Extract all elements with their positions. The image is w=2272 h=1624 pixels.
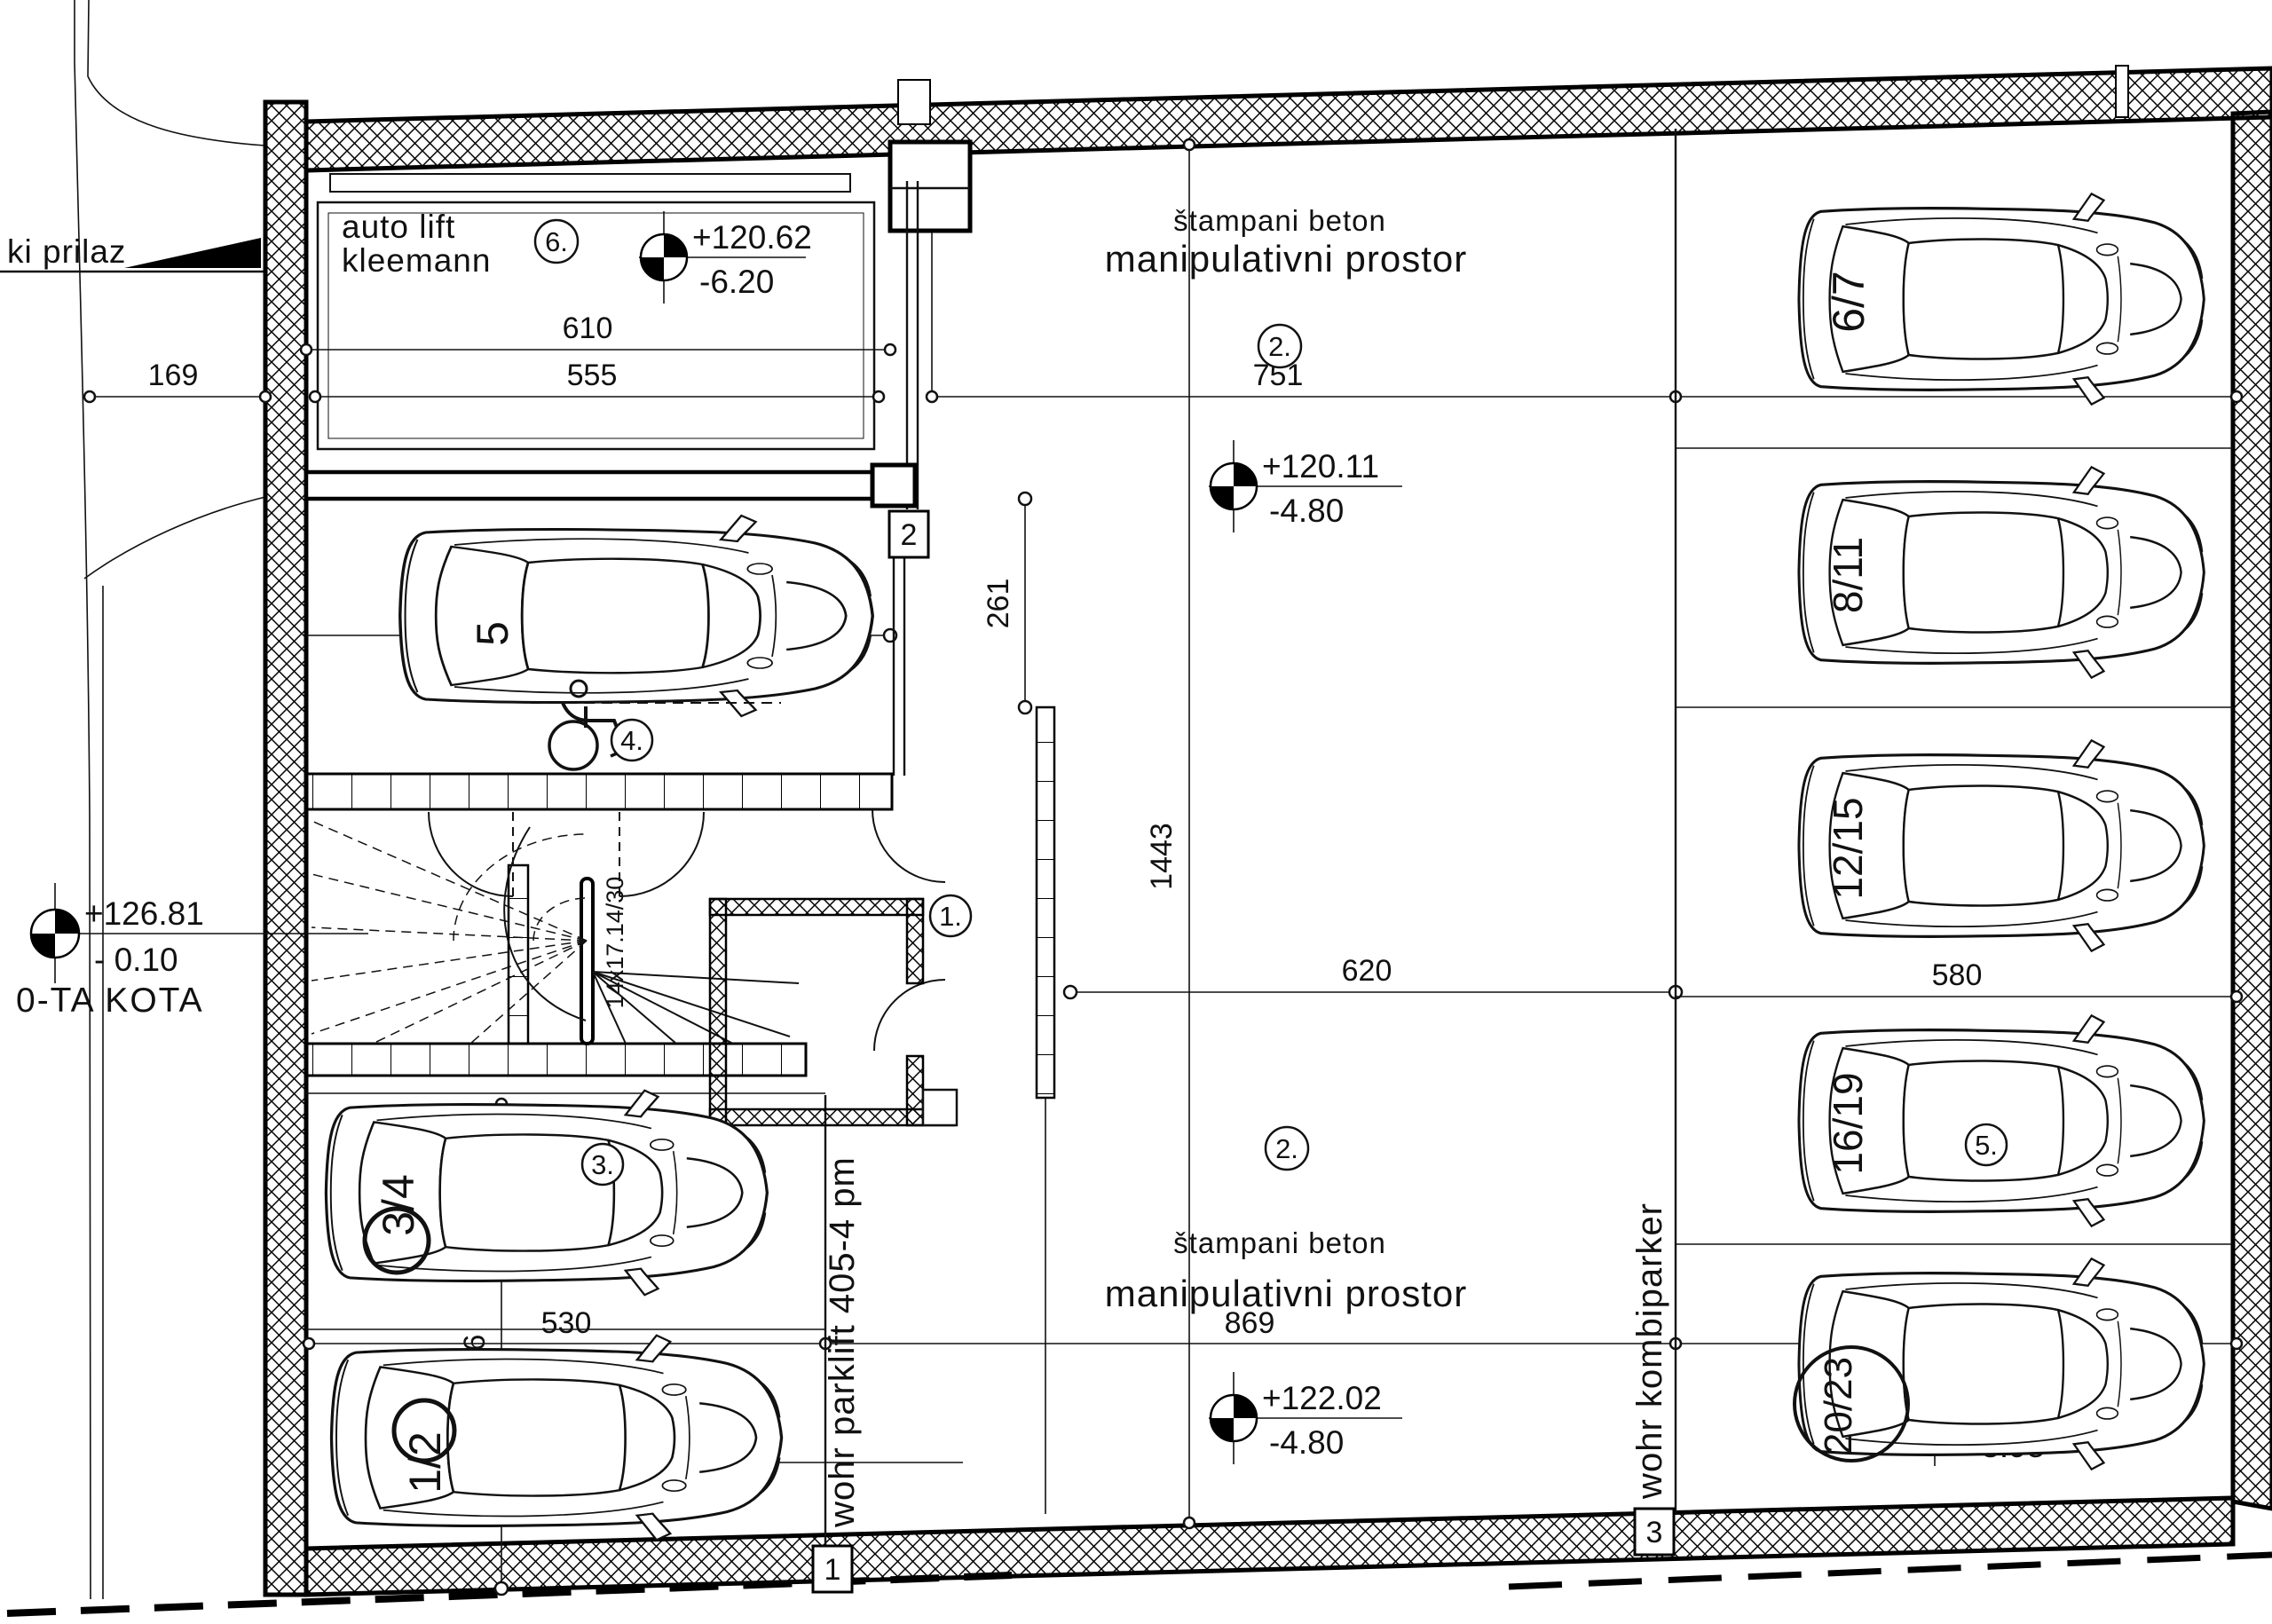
elevation-marker-top-icon: +120.11 -4.80 — [1209, 440, 1402, 532]
entrance: ki prilaz — [0, 233, 265, 272]
floor-plan-page: ki prilaz auto lift kleemann 6. — [0, 0, 2272, 1624]
stair-wall-bottom — [306, 1044, 806, 1076]
area-bottom-name: manipulativni prostor — [1105, 1273, 1468, 1314]
area-top-material: štampani beton — [1173, 204, 1386, 237]
shaft-wall-right-upper — [907, 899, 923, 983]
benchmark-abs: +126.81 — [84, 895, 204, 932]
wall-end-column — [872, 465, 915, 506]
dim-530: 530 — [541, 1306, 592, 1340]
elevation-marker-mid-icon: +122.02 -4.80 — [1209, 1372, 1402, 1464]
elev-lift-abs: +120.62 — [692, 219, 812, 256]
shaft-block — [923, 1090, 957, 1125]
stall-1215-label: 12/15 — [1825, 797, 1871, 899]
grid-3: 3 — [1646, 1516, 1663, 1549]
equipment-labels: wohr parklift 405-4 pm wohr kombiparker — [823, 1156, 1669, 1528]
stall-67-label: 6/7 — [1824, 271, 1874, 333]
shaft-wall-top — [710, 899, 923, 915]
wall-joint — [2116, 66, 2128, 117]
elev-lift-rel: -6.20 — [699, 264, 774, 300]
benchmark-rel: - 0.10 — [94, 942, 178, 978]
bubble-5: 5. — [1975, 1130, 1998, 1161]
stair-core-wall-left — [509, 865, 528, 1044]
dim-580-mid: 580 — [1932, 958, 1983, 992]
dim-169: 169 — [148, 359, 199, 392]
autolift-label-1: auto lift — [342, 209, 455, 245]
dim-555: 555 — [567, 359, 618, 392]
elev-mid-rel: -4.80 — [1269, 1424, 1344, 1461]
dim-610: 610 — [563, 311, 613, 345]
area-top-name: manipulativni prostor — [1105, 238, 1468, 280]
wall-below-lift — [306, 472, 890, 499]
shaft-wall-left — [710, 899, 726, 1125]
area-bottom-material: štampani beton — [1173, 1226, 1386, 1259]
wall-left — [265, 102, 306, 1595]
grid-1: 1 — [824, 1553, 841, 1587]
kombiparker-label: wohr kombiparker — [1630, 1202, 1669, 1500]
staircase: 14x17.14/30 — [306, 774, 945, 1076]
bubble-2-top: 2. — [1268, 331, 1291, 362]
bubble-3: 3. — [591, 1149, 614, 1180]
benchmark-marker-icon: +126.81 - 0.10 0-TA KOTA — [16, 883, 368, 1020]
stall-2023-label: 20/23 — [1817, 1357, 1860, 1455]
entrance-label: ki prilaz — [7, 233, 126, 270]
auto-lift-room: auto lift kleemann 6. — [306, 174, 932, 509]
wall-right — [2233, 112, 2272, 1509]
stall-811-label: 8/11 — [1825, 537, 1871, 613]
wall-notch — [898, 80, 930, 124]
elev-top-abs: +120.11 — [1262, 448, 1379, 485]
parklift-label: wohr parklift 405-4 pm — [823, 1156, 862, 1528]
stall-34-label: 3/4 — [374, 1174, 423, 1236]
column-pier — [890, 142, 970, 231]
dim-261: 261 — [982, 579, 1015, 629]
bubble-4: 4. — [620, 725, 643, 756]
dim-620: 620 — [1342, 954, 1392, 988]
shaft-room: 1. — [710, 895, 971, 1125]
dim-1443: 1443 — [1145, 823, 1179, 890]
elev-top-rel: -4.80 — [1269, 493, 1344, 529]
stall-1619-label: 16/19 — [1825, 1072, 1871, 1174]
garage-floor-plan: ki prilaz auto lift kleemann 6. — [0, 0, 2272, 1624]
shaft-wall-right-lower — [907, 1056, 923, 1125]
stair-treads — [504, 827, 799, 1044]
ramp-arrow-icon — [124, 238, 261, 268]
wall-vestibule-right — [1037, 707, 1054, 1098]
bubble-6: 6. — [545, 226, 568, 257]
stair-winders — [312, 821, 587, 1044]
stall-5-label: 5 — [468, 621, 517, 646]
stair-wall-top — [306, 774, 892, 809]
benchmark-name: 0-TA KOTA — [16, 981, 204, 1020]
grid-2: 2 — [901, 518, 918, 552]
car-5 — [400, 516, 872, 716]
bubble-1: 1. — [939, 901, 962, 932]
bubble-2-bottom: 2. — [1275, 1133, 1298, 1164]
autolift-label-2: kleemann — [342, 242, 491, 279]
car-1-2 — [332, 1336, 782, 1541]
wall-top — [306, 68, 2272, 170]
lift-rail — [330, 174, 850, 192]
elev-mid-abs: +122.02 — [1262, 1380, 1382, 1416]
